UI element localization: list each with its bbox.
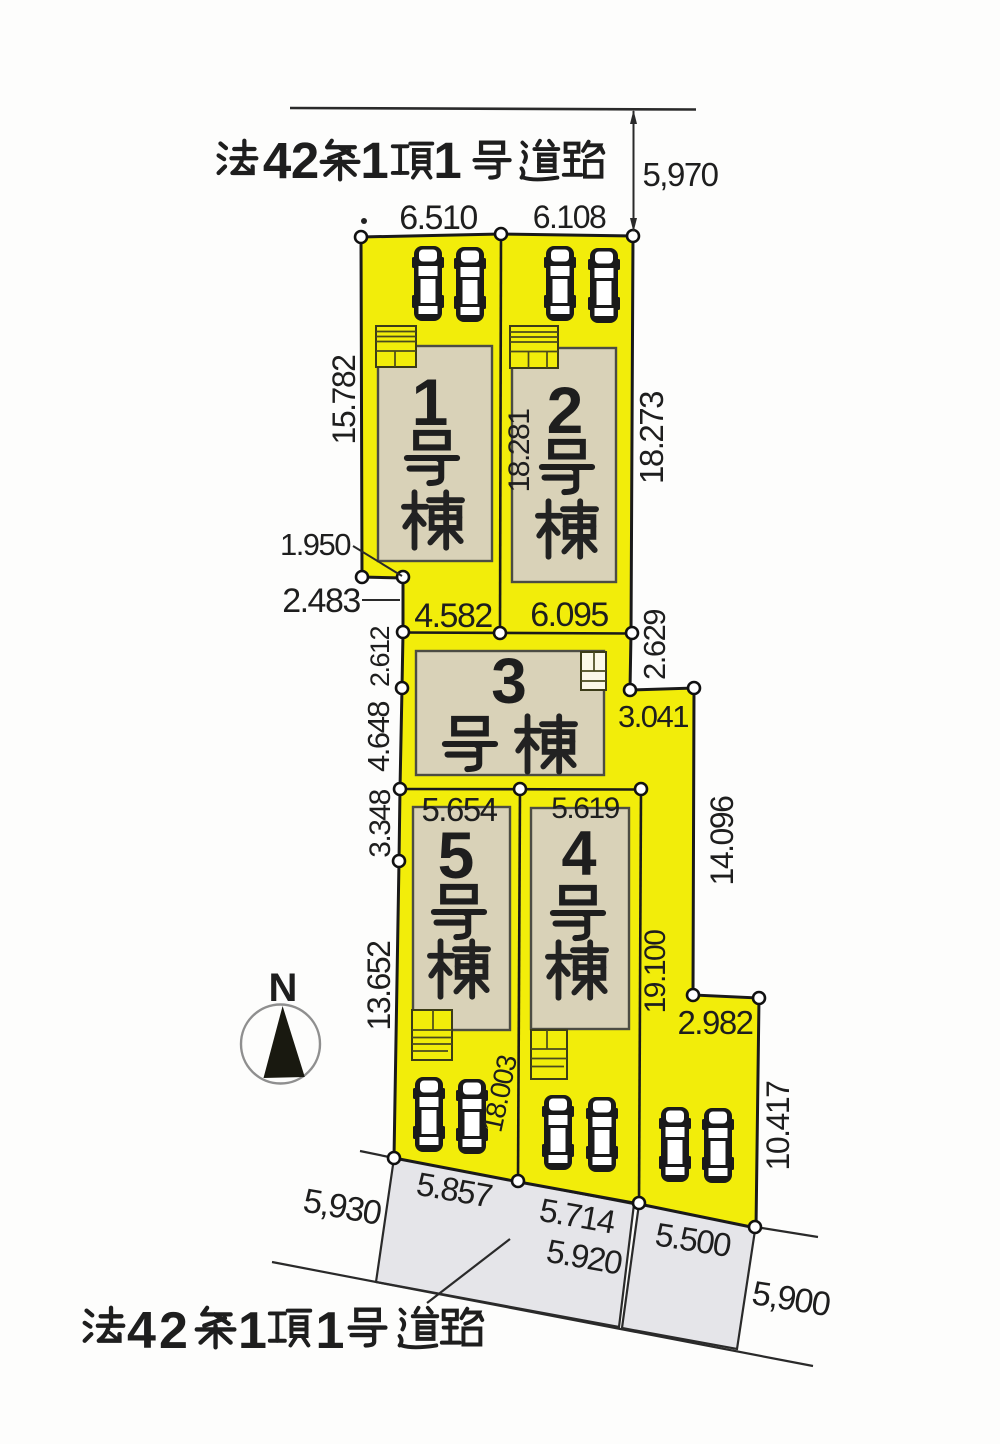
svg-text:4.582: 4.582 — [414, 597, 492, 635]
svg-text:1: 1 — [412, 365, 449, 439]
svg-text:6.108: 6.108 — [533, 199, 606, 235]
svg-text:2.483: 2.483 — [282, 582, 360, 620]
svg-text:2: 2 — [159, 1302, 188, 1360]
svg-text:15.782: 15.782 — [326, 355, 362, 445]
svg-text:13.652: 13.652 — [361, 941, 397, 1031]
svg-text:3: 3 — [491, 645, 527, 717]
svg-text:2: 2 — [291, 132, 319, 189]
svg-text:3.041: 3.041 — [618, 699, 688, 734]
svg-text:2.982: 2.982 — [677, 1004, 752, 1041]
svg-text:19.100: 19.100 — [639, 930, 672, 1014]
svg-text:1: 1 — [316, 1302, 345, 1360]
svg-text:4: 4 — [127, 1302, 156, 1360]
svg-text:18.281: 18.281 — [503, 409, 536, 493]
svg-text:2: 2 — [547, 373, 584, 447]
svg-text:5,970: 5,970 — [642, 156, 718, 193]
svg-text:4: 4 — [263, 132, 292, 189]
svg-text:6.510: 6.510 — [399, 199, 477, 237]
svg-text:18.273: 18.273 — [633, 392, 670, 484]
svg-text:1: 1 — [238, 1302, 267, 1360]
svg-text:1.950: 1.950 — [280, 527, 351, 562]
svg-text:6.095: 6.095 — [530, 596, 608, 634]
svg-text:1: 1 — [360, 132, 388, 189]
svg-text:2.612: 2.612 — [365, 626, 395, 687]
svg-text:1: 1 — [433, 132, 461, 189]
svg-text:5: 5 — [438, 818, 475, 892]
svg-text:4.648: 4.648 — [361, 702, 396, 772]
svg-text:10.417: 10.417 — [760, 1081, 796, 1171]
svg-text:2.629: 2.629 — [637, 610, 672, 680]
svg-text:3.348: 3.348 — [364, 789, 397, 857]
svg-text:4: 4 — [561, 819, 596, 889]
svg-text:14.096: 14.096 — [704, 796, 740, 886]
